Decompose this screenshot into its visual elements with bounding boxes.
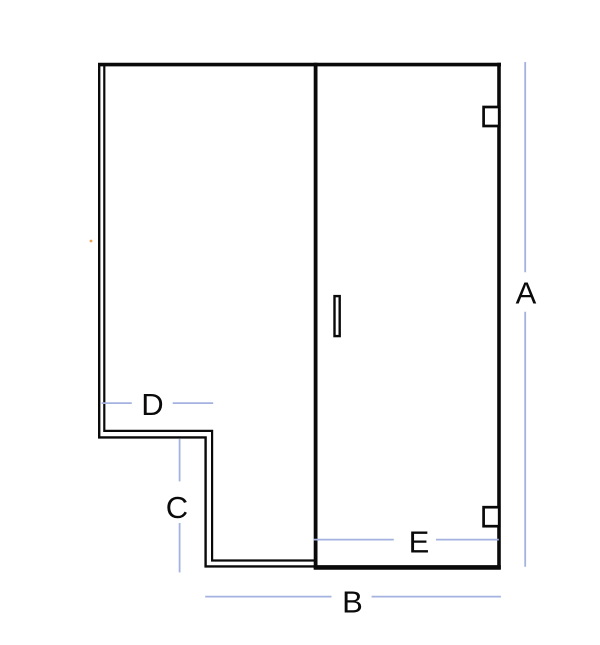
panel-outline (98, 63, 501, 570)
left-channel-outer-line (99, 63, 316, 566)
dimension-b-label: B (342, 585, 363, 620)
bottom-hinge-icon (484, 507, 500, 526)
door-hardware (335, 107, 500, 526)
diagram-canvas: A B C D E (0, 0, 600, 645)
dimension-d-label: D (141, 387, 163, 422)
shower-enclosure-diagram: A B C D E (0, 0, 600, 645)
door-handle (335, 296, 340, 336)
dimension-a-label: A (516, 276, 537, 311)
dimension-e-label: E (409, 524, 430, 559)
top-hinge-icon (484, 107, 500, 126)
stray-speck (90, 240, 93, 243)
left-channel-inner-line (104, 66, 315, 561)
dimension-c-label: C (166, 490, 188, 525)
